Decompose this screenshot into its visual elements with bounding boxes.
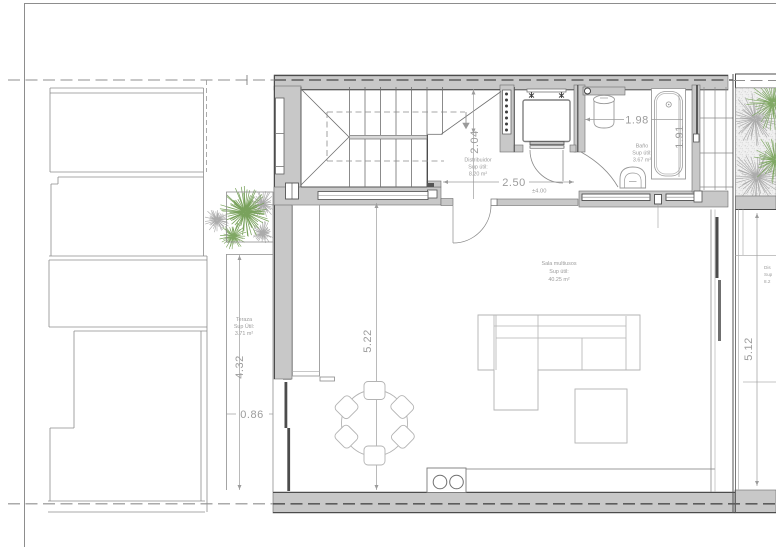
svg-text:Sup: Sup (764, 272, 773, 277)
svg-text:2.50: 2.50 (502, 177, 525, 189)
svg-text:3.67 m²: 3.67 m² (633, 158, 651, 164)
svg-text:Sala multiusos: Sala multiusos (541, 261, 576, 267)
svg-text:Sup Útil:: Sup Útil: (234, 323, 254, 330)
svg-text:2.04: 2.04 (469, 130, 481, 153)
svg-text:8.20 m²: 8.20 m² (469, 172, 487, 178)
svg-text:5.22: 5.22 (362, 329, 374, 352)
svg-text:8.2: 8.2 (764, 279, 771, 284)
svg-text:Sup útil:: Sup útil: (632, 151, 651, 157)
svg-text:1.98: 1.98 (625, 115, 648, 127)
svg-text:Baño: Baño (636, 144, 649, 150)
svg-text:Dis: Dis (764, 265, 771, 270)
svg-text:0.86: 0.86 (240, 409, 263, 421)
svg-text:Sup útil:: Sup útil: (549, 269, 568, 275)
svg-text:3.71 m²: 3.71 m² (235, 331, 253, 337)
svg-text:40.25 m²: 40.25 m² (548, 277, 569, 283)
svg-text:1.91: 1.91 (674, 125, 686, 148)
svg-text:±4.00: ±4.00 (532, 189, 546, 195)
svg-text:5.12: 5.12 (743, 337, 755, 360)
svg-text:Distribuidor: Distribuidor (464, 158, 491, 164)
svg-text:Sup útil:: Sup útil: (468, 165, 487, 171)
svg-text:Teraza: Teraza (236, 317, 252, 323)
svg-text:4.32: 4.32 (234, 355, 246, 378)
